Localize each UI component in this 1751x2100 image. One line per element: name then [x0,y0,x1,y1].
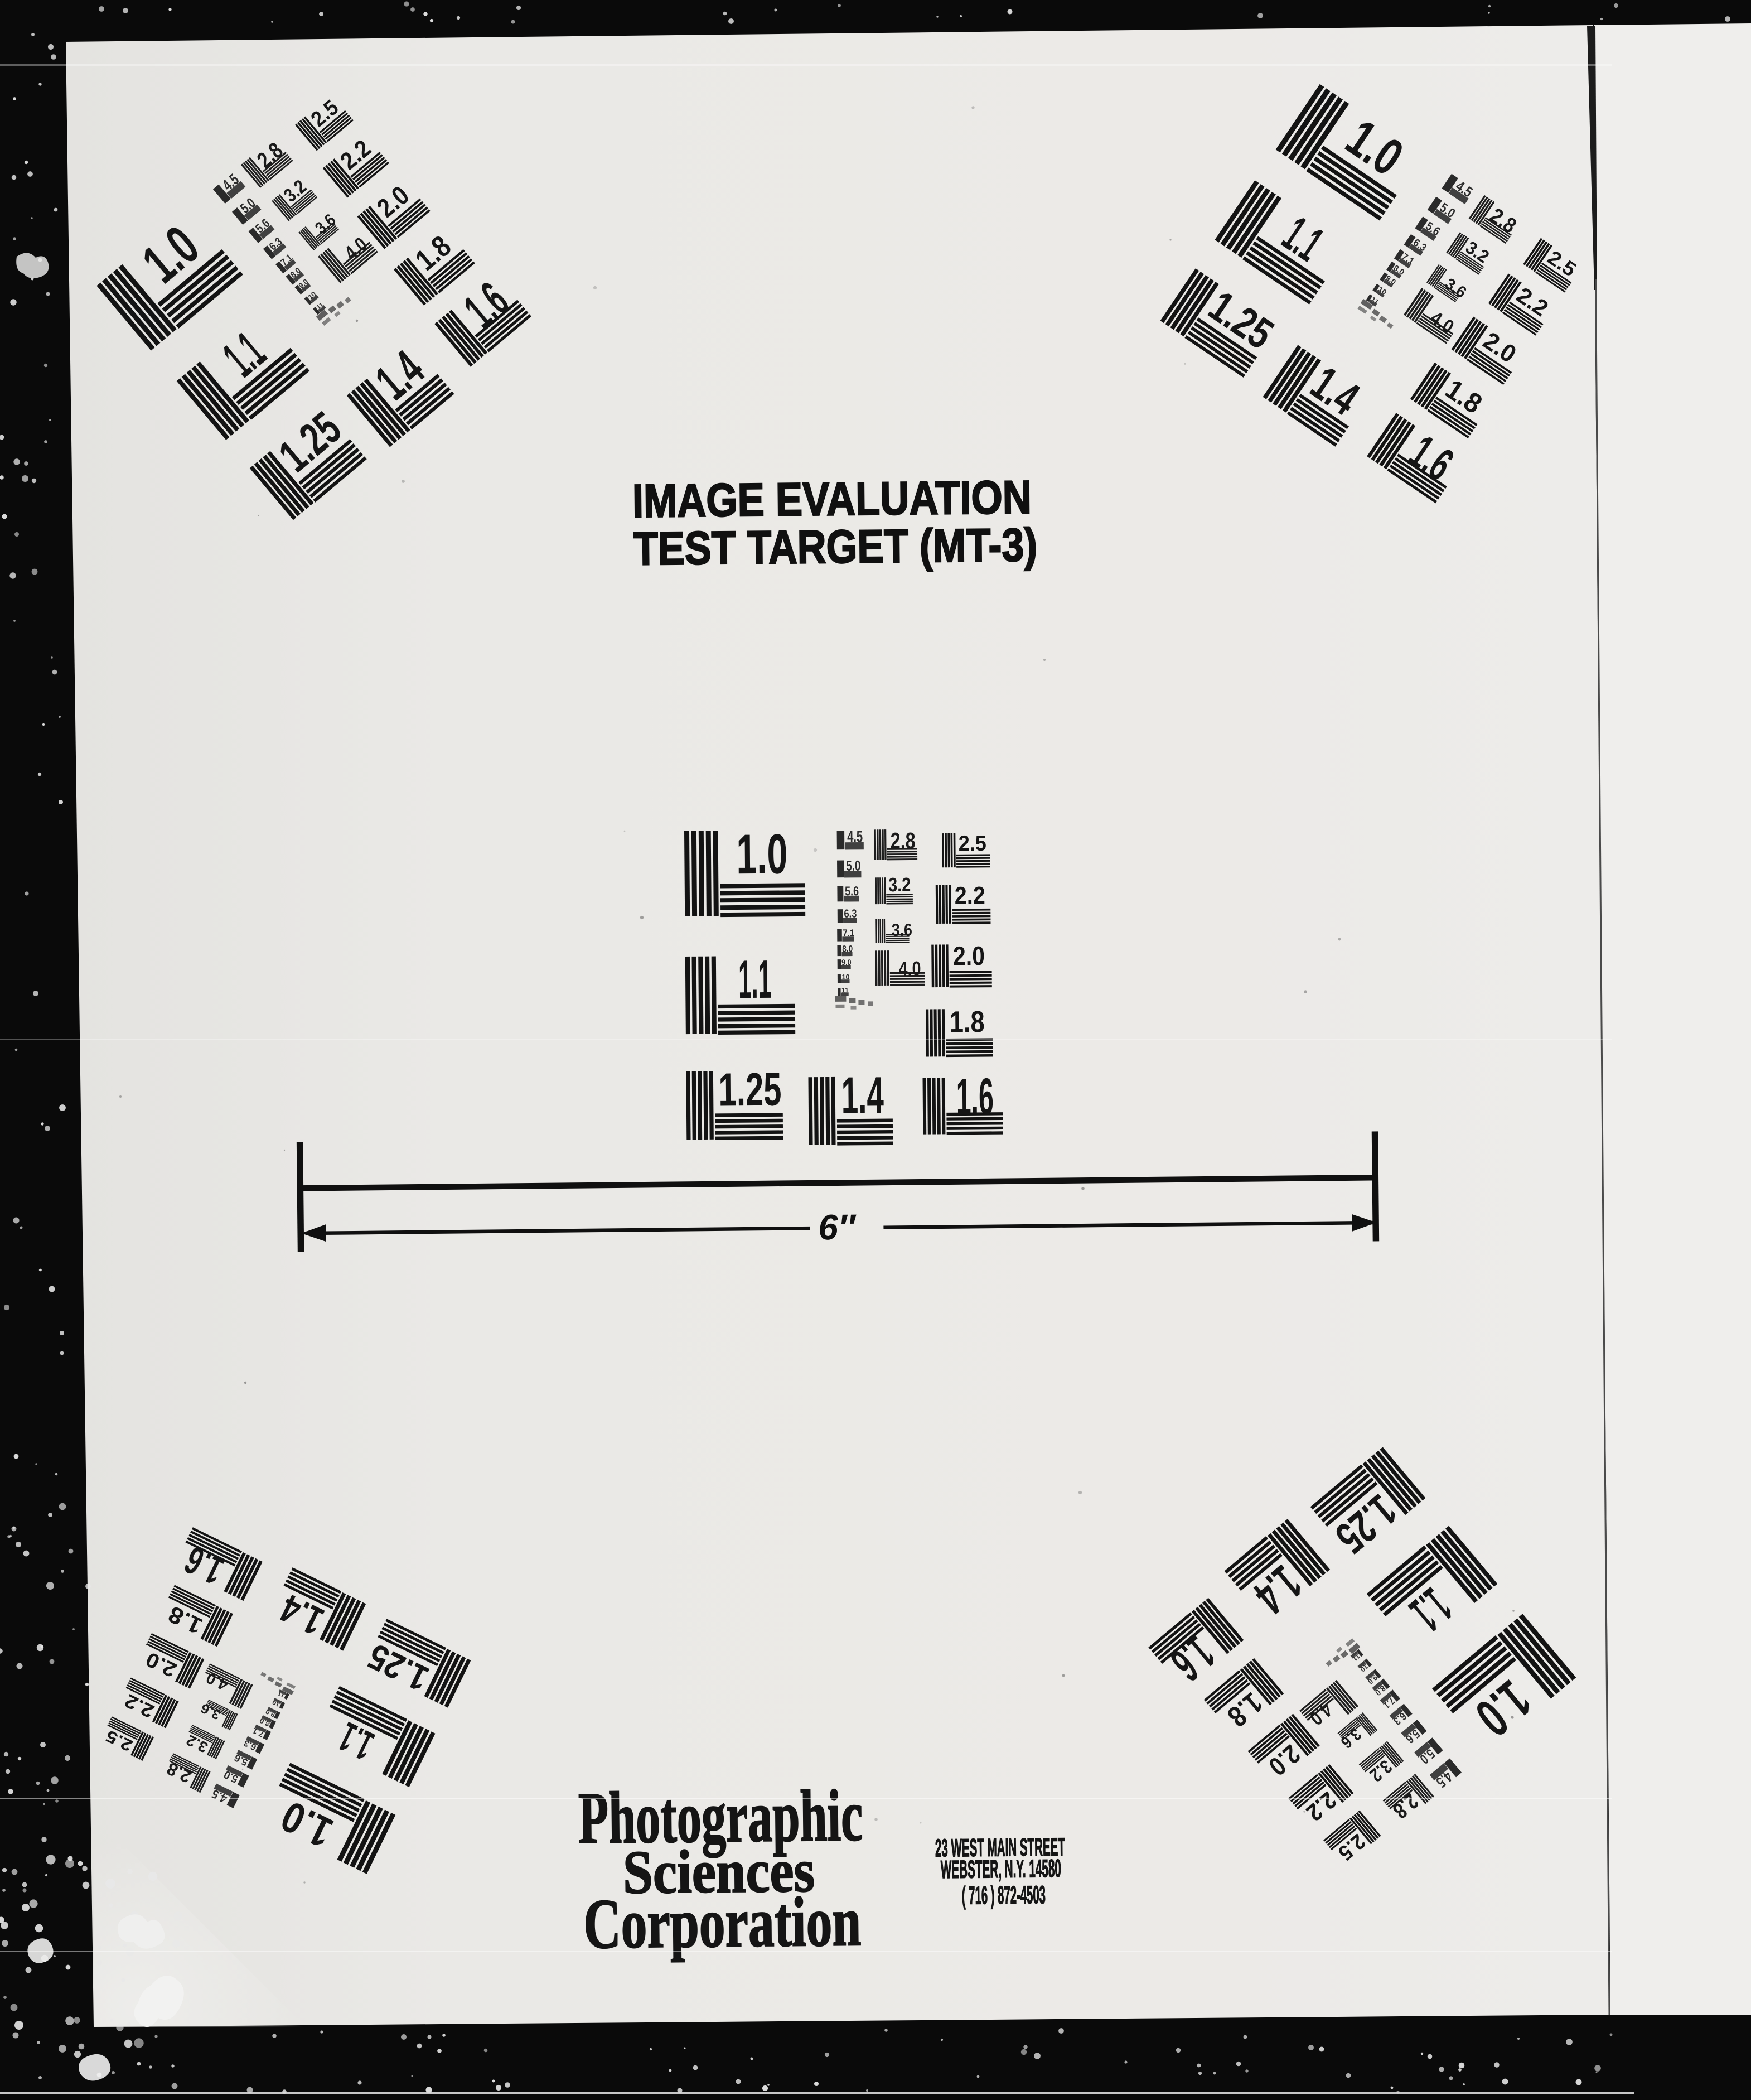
svg-text:( 716 ) 872-4503: ( 716 ) 872-4503 [962,1880,1046,1909]
svg-text:6″: 6″ [818,1207,857,1248]
svg-text:TEST TARGET (MT-3): TEST TARGET (MT-3) [633,518,1038,575]
svg-text:WEBSTER, N.Y. 14580: WEBSTER, N.Y. 14580 [941,1854,1061,1884]
